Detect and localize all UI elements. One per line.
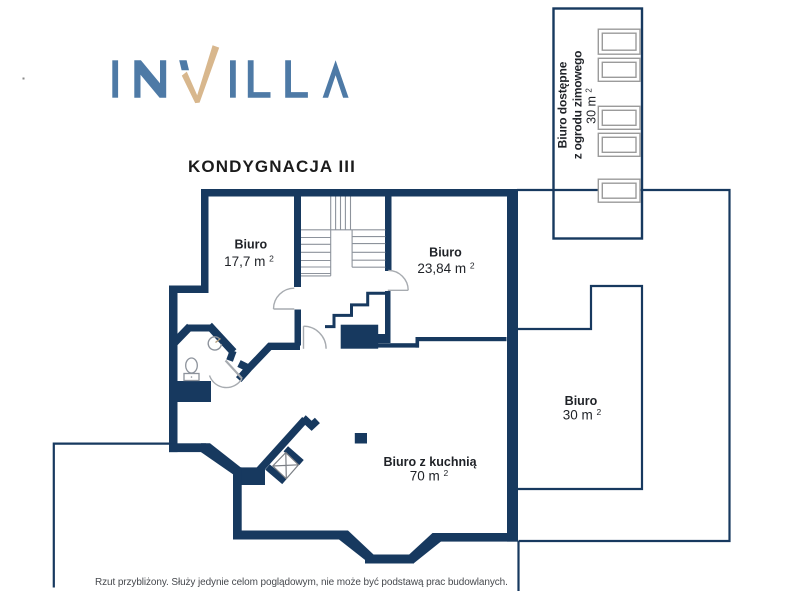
svg-text:Biuro dostępne: Biuro dostępne [556,61,570,148]
svg-text:Rzut przybliżony. Służy jedyni: Rzut przybliżony. Służy jedynie celom po… [95,577,508,588]
svg-text:23,84 m 2: 23,84 m 2 [417,261,475,277]
svg-text:z ogrodu zimowego: z ogrodu zimowego [571,51,585,160]
svg-text:Biuro: Biuro [565,394,598,408]
svg-text:30 m 2: 30 m 2 [585,88,599,124]
svg-text:Biuro: Biuro [234,238,267,252]
svg-text:30 m 2: 30 m 2 [563,407,602,423]
svg-text:70 m 2: 70 m 2 [410,468,449,484]
svg-text:KONDYGNACJA III: KONDYGNACJA III [188,157,356,176]
svg-text:Biuro z kuchnią: Biuro z kuchnią [383,455,477,469]
svg-text:17,7 m 2: 17,7 m 2 [224,254,274,270]
svg-text:Biuro: Biuro [429,246,462,260]
